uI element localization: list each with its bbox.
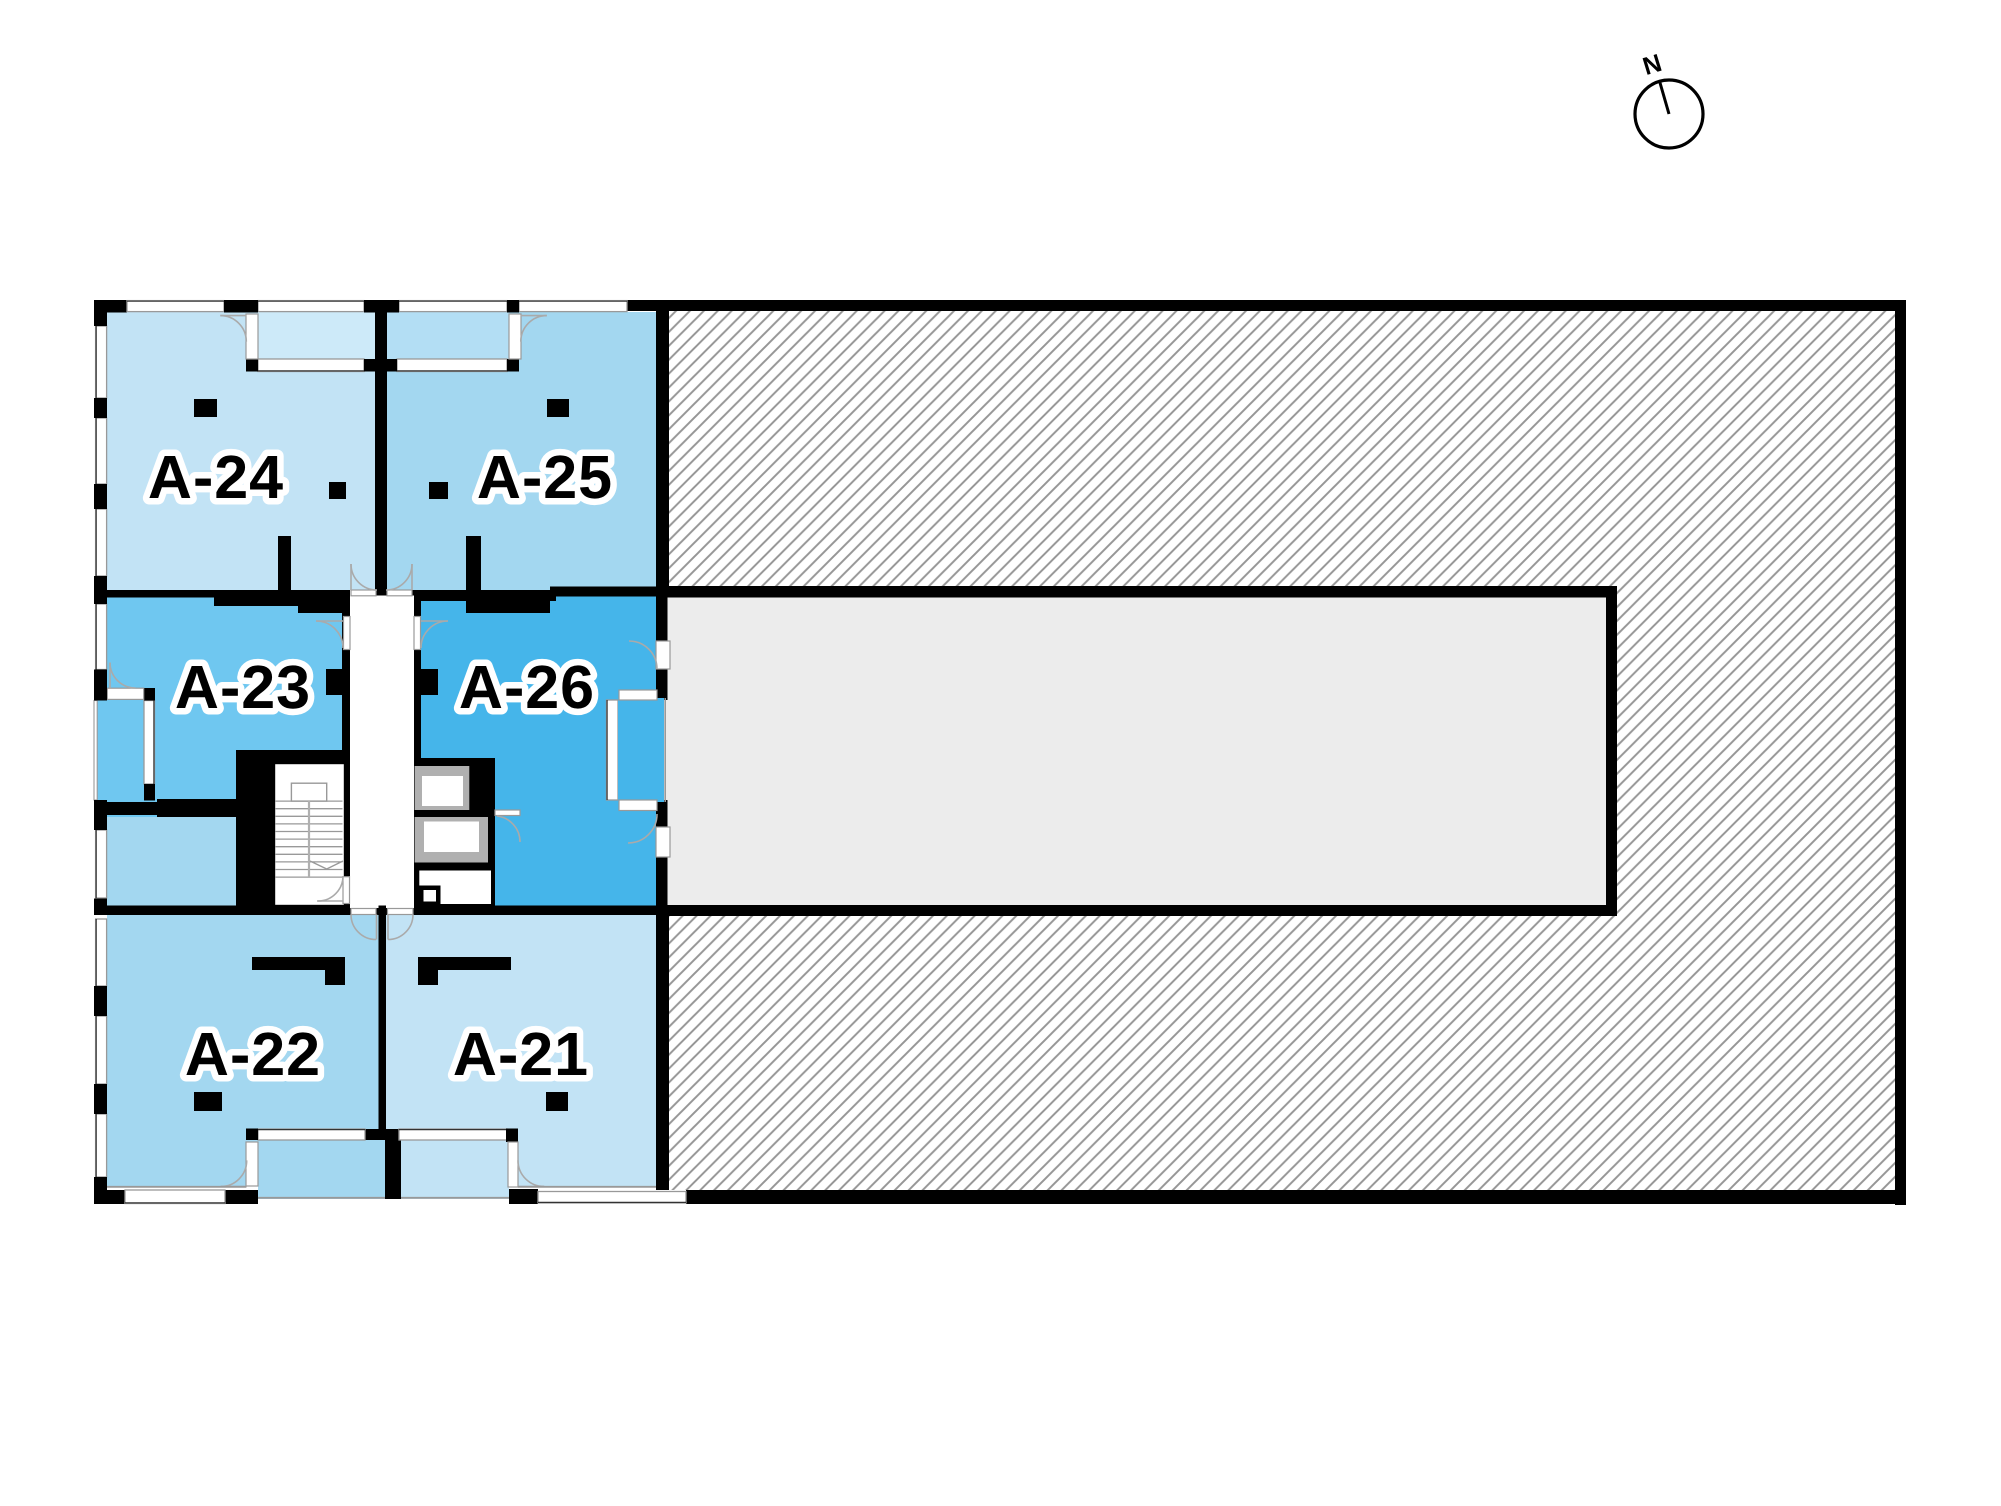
svg-text:A-25: A-25 bbox=[477, 443, 613, 511]
svg-text:A-23: A-23 bbox=[175, 653, 311, 721]
svg-text:A-26: A-26 bbox=[459, 653, 595, 721]
svg-text:A-24: A-24 bbox=[148, 443, 284, 511]
svg-text:N: N bbox=[1640, 49, 1665, 81]
svg-text:A-21: A-21 bbox=[453, 1020, 589, 1088]
svg-text:A-22: A-22 bbox=[185, 1020, 321, 1088]
